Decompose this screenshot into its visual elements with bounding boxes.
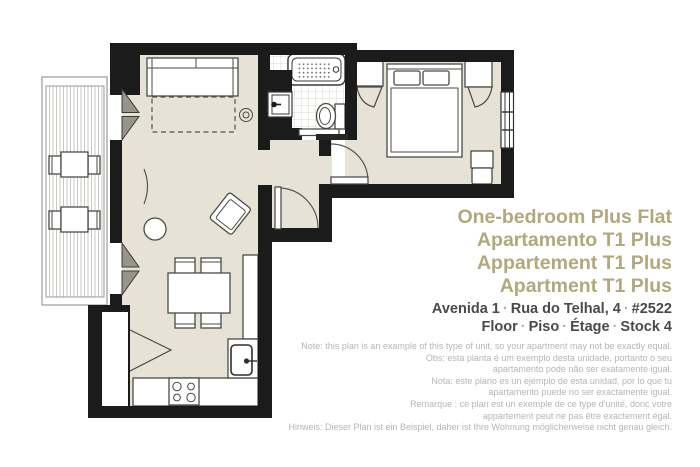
title-en2: Apartment T1 Plus: [457, 275, 672, 298]
dot-separator: ·: [621, 301, 632, 317]
pillow: [394, 71, 420, 85]
dot-separator: ·: [500, 301, 511, 317]
address-block: Avenida 1·Rua do Telhal, 4·#2522 Floor·P…: [432, 301, 672, 336]
unit-titles: One-bedroom Plus Flat Apartamento T1 Plu…: [457, 206, 672, 298]
note-line: Nota: este plano es un ejemplo de esta u…: [288, 376, 672, 388]
bedroom-window: [501, 92, 514, 148]
kitchen-stove: [169, 378, 199, 405]
note-line: appartement peut ne pas être exactement …: [288, 411, 672, 423]
note-line: Obs: esta planta é um exemplo desta unid…: [288, 353, 672, 365]
double-bed: [387, 64, 462, 157]
bathroom-sliding-door: [299, 129, 348, 140]
note-line: apartamento pode não ser exatamente igua…: [288, 364, 672, 376]
address-line: Avenida 1·Rua do Telhal, 4·#2522: [432, 301, 672, 319]
dot-separator: ·: [518, 319, 529, 335]
balcony-deck: [46, 86, 104, 297]
note-line: Note: this plan is an example of this ty…: [288, 341, 672, 353]
floor-line: Floor·Piso·Étage·Stock 4: [432, 319, 672, 337]
pillow: [423, 71, 449, 85]
round-table: [144, 218, 166, 240]
kitchen-cabinet: [243, 255, 258, 339]
bathtub: [288, 54, 345, 85]
note-line: Remarque : ce plan est un exemple de ce …: [288, 399, 672, 411]
note-line: Hinweis: Dieser Plan ist ein Beispiel, d…: [288, 422, 672, 434]
disclaimer-notes: Note: this plan is an example of this ty…: [288, 341, 672, 434]
dot-separator: ·: [610, 319, 621, 335]
bedroom-desk: [471, 151, 493, 184]
floor-plan-page: One-bedroom Plus Flat Apartamento T1 Plu…: [0, 0, 700, 467]
note-line: apartamento puede no ser exactamente igu…: [288, 387, 672, 399]
balcony: [42, 77, 107, 305]
toilet: [317, 104, 346, 130]
dot-separator: ·: [559, 319, 570, 335]
title-fr: Appartement T1 Plus: [457, 252, 672, 275]
bathroom-sink: [268, 92, 292, 117]
title-en: One-bedroom Plus Flat: [457, 206, 672, 229]
title-pt: Apartamento T1 Plus: [457, 229, 672, 252]
entry-recess: [102, 312, 128, 406]
balcony-table-top: [49, 152, 100, 177]
balcony-table-bottom: [49, 207, 100, 232]
